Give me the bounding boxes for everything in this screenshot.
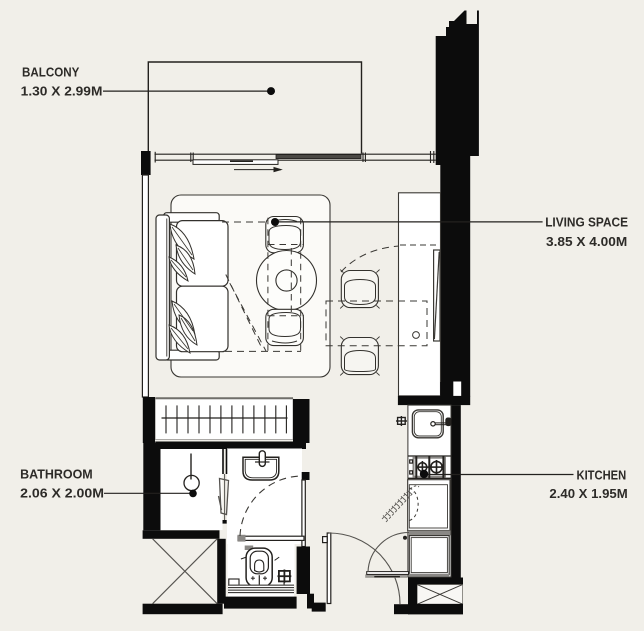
- svg-text:BATHROOM: BATHROOM: [20, 467, 93, 482]
- svg-text:2.06 X 2.00M: 2.06 X 2.00M: [20, 486, 104, 501]
- svg-text:2.40 X 1.95M: 2.40 X 1.95M: [549, 486, 627, 501]
- svg-text:LIVING SPACE: LIVING SPACE: [545, 215, 628, 230]
- svg-text:1.30 X 2.99M: 1.30 X 2.99M: [21, 84, 103, 99]
- svg-text:BALCONY: BALCONY: [22, 65, 80, 80]
- svg-text:KITCHEN: KITCHEN: [577, 468, 627, 483]
- svg-text:3.85 X 4.00M: 3.85 X 4.00M: [546, 234, 627, 249]
